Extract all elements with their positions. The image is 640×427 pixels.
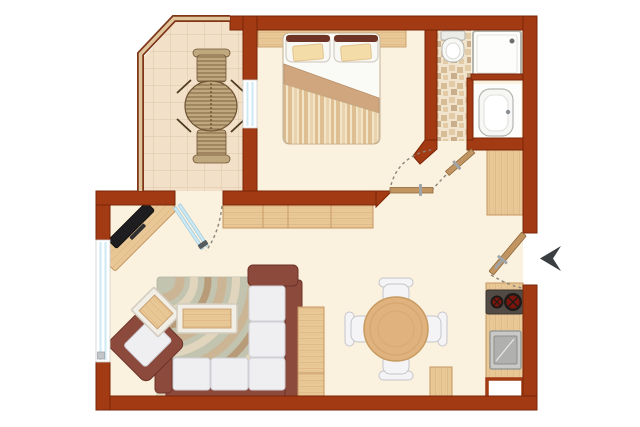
- window-frame: [96, 240, 110, 362]
- wall-bottom: [96, 396, 537, 410]
- wall-balcony-divider-lower: [243, 128, 257, 191]
- floor-plan: [0, 0, 640, 427]
- shower-drain: [510, 39, 515, 44]
- sofa-cushion: [173, 358, 210, 390]
- pillow-right: [334, 35, 378, 62]
- dining-table: [364, 297, 428, 361]
- wall-right-lower: [523, 285, 537, 410]
- pillow-left-trim: [286, 35, 330, 42]
- balcony-chair-top-seat: [197, 55, 226, 82]
- toilet-seat: [446, 43, 460, 59]
- coffee-table-top: [183, 309, 231, 328]
- coffee-table: [177, 304, 237, 333]
- wall-bathroom-divider-vertical: [467, 78, 473, 140]
- window-living-left: [96, 240, 110, 362]
- kitchenette: [486, 283, 523, 400]
- sofa-armrest-top: [248, 265, 298, 286]
- wall-left-lower: [96, 362, 110, 410]
- pillow-right-trim: [334, 35, 378, 42]
- wall-bedroom-bottom: [223, 191, 376, 205]
- tall-cabinet: [298, 307, 324, 397]
- shower-tray: [473, 31, 521, 77]
- toilet: [441, 31, 465, 62]
- burner-left: [491, 296, 504, 309]
- wall-bathroom-divider-horizontal: [471, 74, 523, 80]
- wall-bathroom-bottom: [467, 138, 523, 150]
- wall-right-upper: [523, 16, 537, 233]
- shower: [473, 31, 521, 77]
- sofa-cushion: [249, 358, 285, 390]
- washbasin: [479, 89, 513, 136]
- pillow-right-inner: [340, 44, 371, 62]
- window-frame: [243, 80, 257, 128]
- pillow-left-inner: [292, 44, 323, 62]
- entrance-arrow-icon: [540, 246, 561, 271]
- balcony-chair-bottom-seat: [197, 130, 226, 157]
- wall-bathroom-left: [425, 30, 437, 143]
- sideboard: [223, 205, 373, 228]
- wall-top: [230, 16, 537, 30]
- pillow-left: [286, 35, 330, 62]
- sofa-cushion: [211, 358, 248, 390]
- balcony-chair-bottom-back: [193, 155, 230, 163]
- bedroom-door-handle: [419, 184, 422, 196]
- wardrobe: [487, 148, 523, 215]
- window-handle: [98, 352, 105, 359]
- window-balcony-bedroom: [243, 80, 257, 128]
- sofa-cushion: [249, 322, 285, 357]
- bedroom-door-leaf: [390, 188, 433, 194]
- burner-right: [504, 293, 522, 311]
- double-bed: [283, 33, 380, 144]
- washbasin-bowl: [484, 95, 508, 131]
- wall-balcony-divider-upper: [243, 16, 257, 80]
- sofa-cushion: [249, 286, 285, 321]
- wall-living-top-left: [96, 191, 175, 205]
- washbasin-faucet: [506, 110, 510, 114]
- dining-small-cabinet: [430, 367, 452, 397]
- floor-plan-page: [0, 0, 640, 427]
